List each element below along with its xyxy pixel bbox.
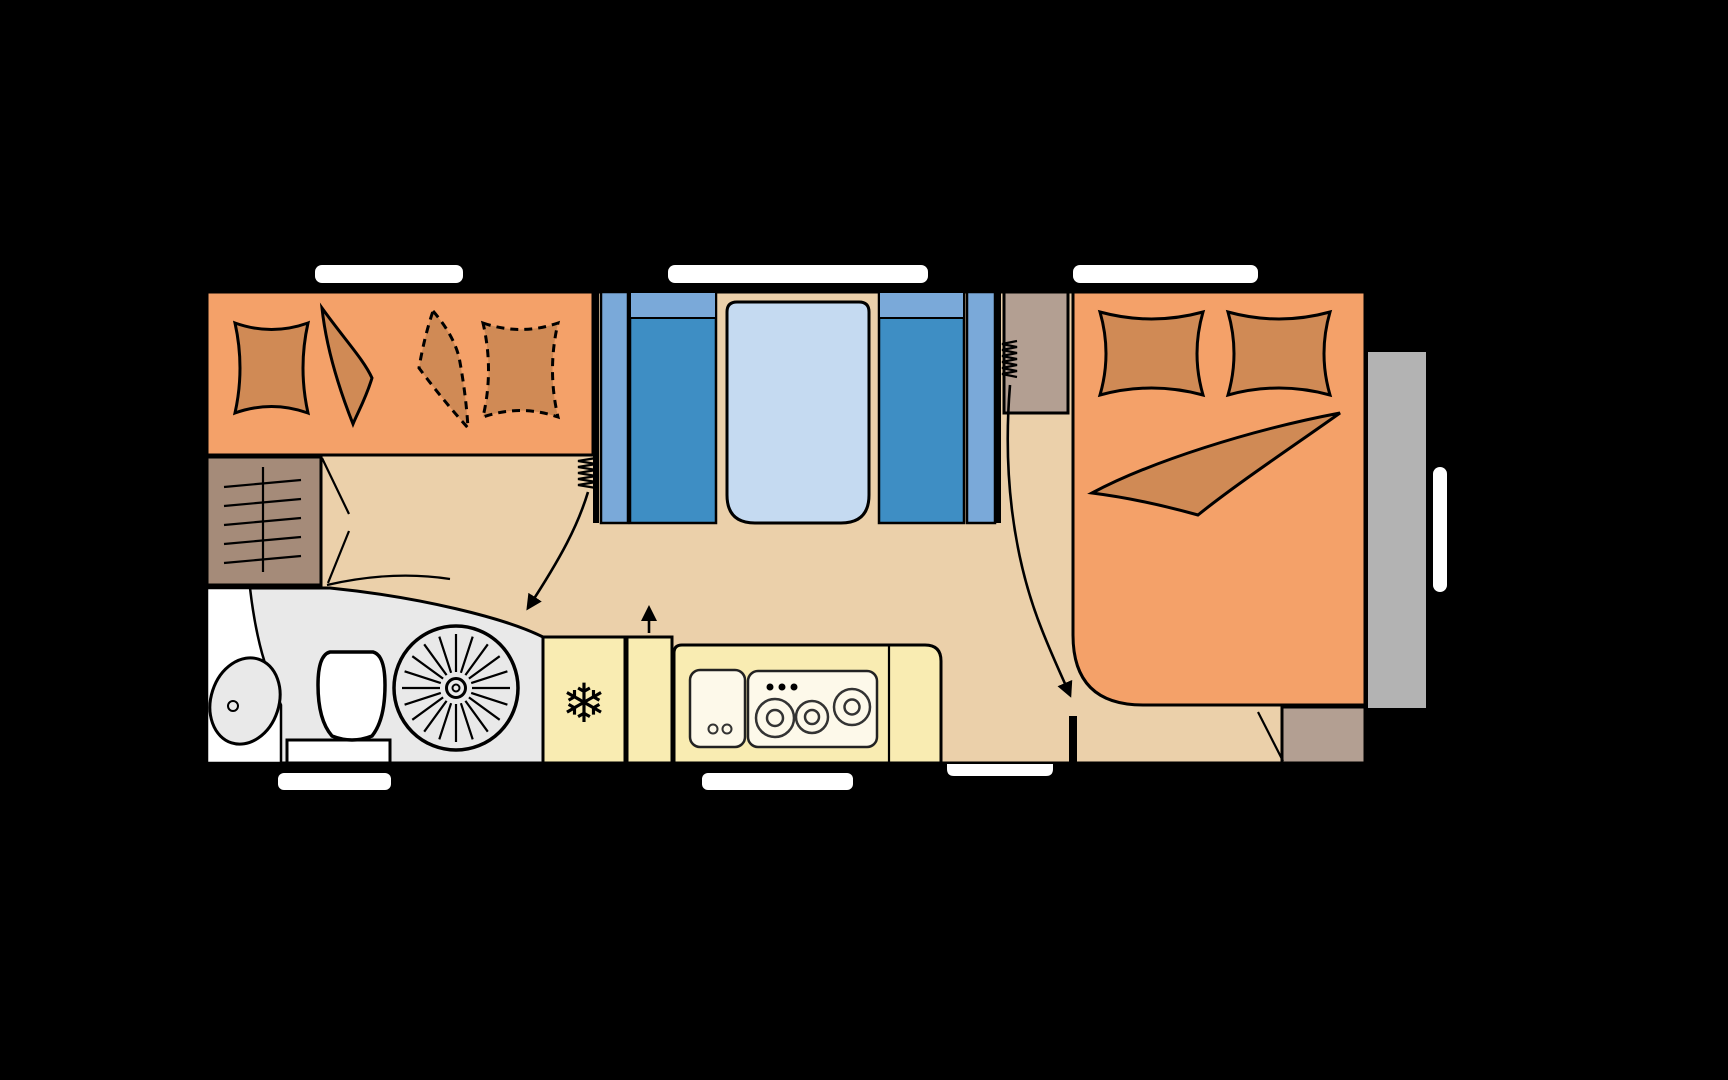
- tap-knob-icon: [723, 725, 732, 734]
- hob-burner-center: [767, 710, 783, 726]
- dinette-right-headrest: [879, 292, 964, 318]
- dinette-left-backrest: [601, 292, 628, 523]
- wardrobe: [207, 457, 321, 585]
- screenshot-stage: ❄: [0, 0, 1728, 1080]
- kitchen: ❄: [543, 637, 941, 763]
- kitchen-window: [702, 773, 853, 790]
- shower: [394, 626, 518, 750]
- hob-knob-dot: [767, 684, 774, 691]
- kitchen-cabinet: [627, 637, 672, 763]
- door-post: [1069, 716, 1077, 763]
- tap-knob-icon: [709, 725, 718, 734]
- hob-knob-dot: [779, 684, 786, 691]
- bedroom-cabinet: [1282, 707, 1365, 763]
- bed-pillow-right: [1228, 312, 1330, 395]
- hob: [748, 671, 877, 747]
- bed-pillow-left: [1100, 312, 1203, 395]
- bedroom: [1069, 292, 1365, 763]
- caravan-floorplan: ❄: [0, 0, 1728, 1080]
- bunk-pillow: [235, 323, 308, 413]
- exterior-front-panel: [1368, 352, 1426, 708]
- dinette-table: [727, 302, 869, 523]
- front-window: [1433, 467, 1447, 592]
- washbasin-drain-icon: [228, 701, 238, 711]
- toilet-base: [287, 740, 390, 763]
- dinette-partition-wall: [995, 292, 1001, 523]
- hob-burner-center: [805, 710, 819, 724]
- dinette: [601, 292, 1001, 523]
- entrance-door: [947, 764, 1053, 776]
- fridge-snowflake-icon: ❄: [561, 672, 606, 735]
- dinette-left-headrest: [630, 292, 716, 318]
- dinette-right-seat: [879, 292, 964, 523]
- service-hatch: [278, 773, 391, 790]
- dinette-right-backrest: [967, 292, 995, 523]
- hob-knob-dot: [791, 684, 798, 691]
- window-dinette: [668, 265, 928, 283]
- toilet: [318, 652, 385, 740]
- dinette-left-seat: [630, 292, 716, 523]
- kitchen-sink: [690, 670, 745, 747]
- hob-burner-center: [845, 700, 860, 715]
- window-bunk: [315, 265, 463, 283]
- window-bed: [1073, 265, 1258, 283]
- shower-drain-center: [453, 685, 460, 692]
- bunk-upper-pillow-dashed: [483, 323, 558, 417]
